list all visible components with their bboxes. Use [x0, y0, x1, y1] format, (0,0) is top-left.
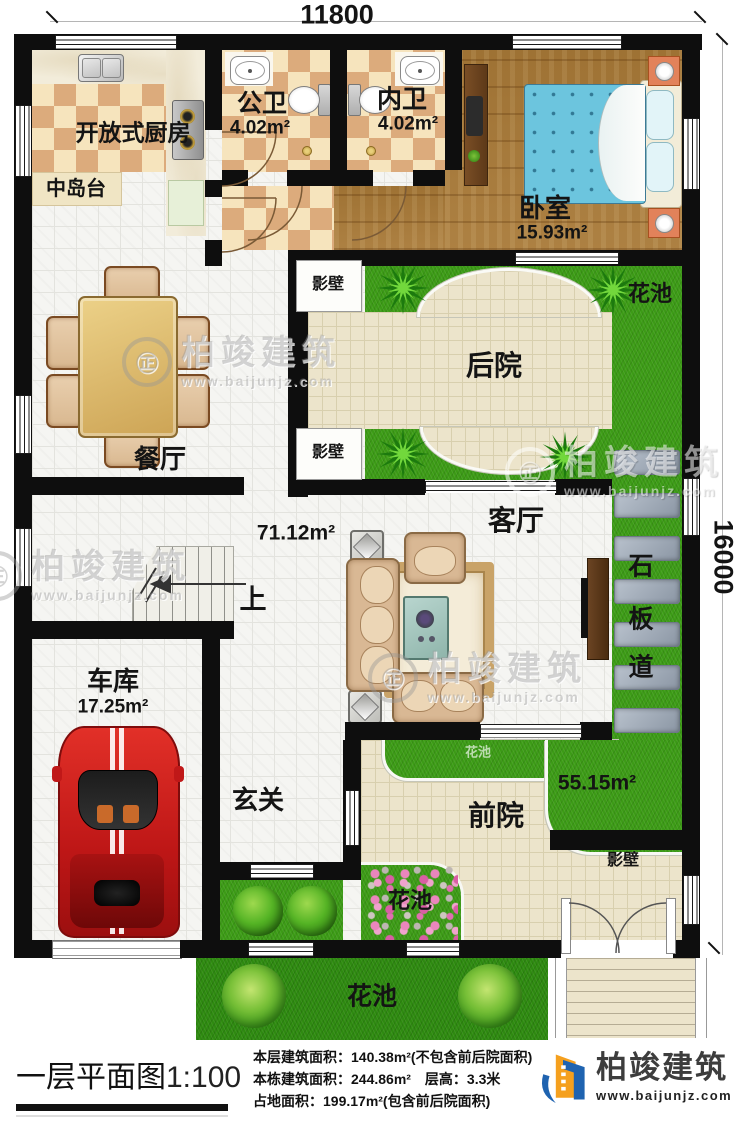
room-area-private-bath: 4.02m²: [378, 115, 438, 134]
label-screen-wall: 影壁: [312, 277, 344, 293]
title-underline-light: [16, 1115, 228, 1117]
brand-logo-block: 柏竣建筑 www.baijunjz.com: [536, 1046, 732, 1108]
plan-title-block: 一层平面图1:100: [16, 1052, 241, 1117]
label-stone-path: 板: [628, 608, 653, 633]
label-flower-bed-small: 花池: [465, 746, 491, 759]
label-screen-wall: 影壁: [607, 853, 639, 869]
room-label-foyer: 玄关: [232, 787, 284, 813]
room-label-bedroom: 卧室: [519, 195, 571, 221]
label-flower-bed: 花池: [388, 890, 432, 912]
plan-title: 一层平面图: [16, 1061, 166, 1094]
room-label-dining: 餐厅: [134, 446, 186, 472]
room-area-public-bath: 4.02m²: [230, 119, 290, 138]
stat-line: 本层建筑面积：140.38m²(不包含前后院面积): [253, 1046, 532, 1068]
stat-line: 本栋建筑面积：244.86m² 层高：3.3米: [253, 1068, 532, 1090]
room-label-public-bath: 公卫: [237, 92, 287, 117]
room-area-living: 71.12m²: [257, 523, 335, 544]
room-area-front-yard: 55.15m²: [558, 773, 636, 794]
brand-name: 柏竣建筑: [596, 1052, 732, 1083]
room-label-island: 中岛台: [46, 179, 106, 199]
area-stats: 本层建筑面积：140.38m²(不包含前后院面积) 本栋建筑面积：244.86m…: [253, 1046, 532, 1112]
label-stone-path: 道: [628, 656, 653, 681]
room-area-garage: 17.25m²: [78, 698, 149, 717]
brand-site: www.baijunjz.com: [596, 1088, 732, 1103]
label-screen-wall: 影壁: [312, 445, 344, 461]
room-label-front-yard: 前院: [468, 802, 524, 830]
room-label-living: 客厅: [488, 507, 544, 535]
room-label-backyard: 后院: [466, 352, 522, 380]
label-flower-bed: 花池: [347, 985, 397, 1010]
room-label-private-bath: 内卫: [377, 88, 427, 113]
label-stairs-up: 上: [240, 587, 267, 614]
room-label-garage: 车库: [87, 668, 139, 694]
title-underline: [16, 1104, 228, 1111]
stat-line: 占地面积：199.17m²(包含前后院面积): [253, 1090, 532, 1112]
room-area-bedroom: 15.93m²: [517, 224, 588, 243]
floor-plan-canvas: 11800 16000: [0, 0, 750, 1124]
brand-logo-icon: [536, 1046, 590, 1108]
room-label-kitchen: 开放式厨房: [76, 122, 191, 145]
label-stone-path: 石: [628, 555, 653, 580]
plan-scale: 1:100: [166, 1061, 241, 1094]
label-flower-bed: 花池: [628, 283, 672, 305]
